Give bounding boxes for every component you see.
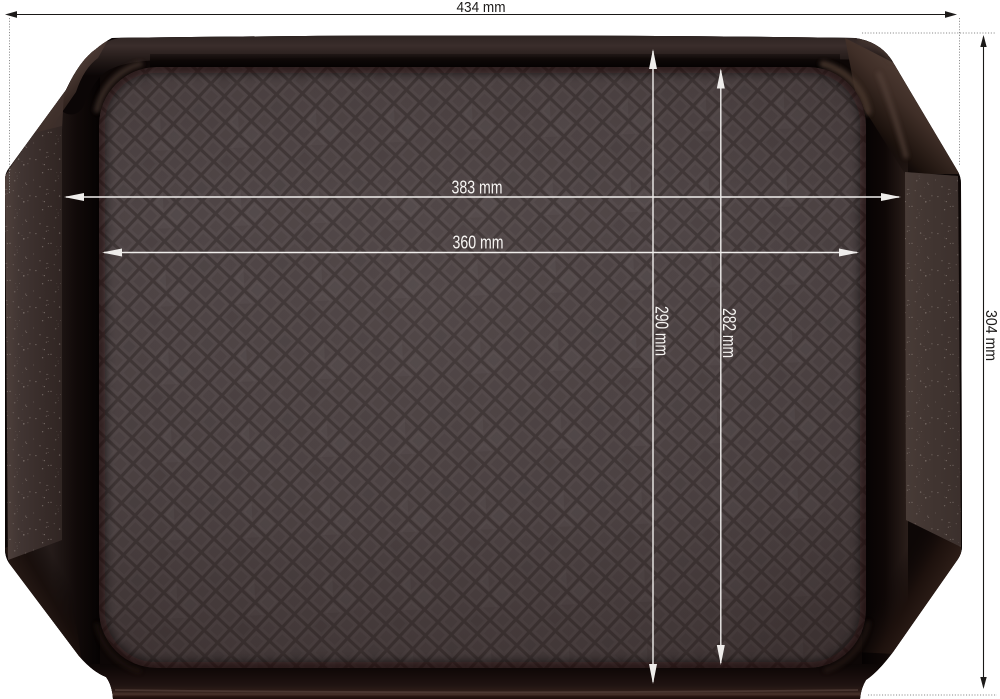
- svg-text:290 mm: 290 mm: [652, 306, 672, 356]
- svg-text:304 mm: 304 mm: [982, 310, 999, 361]
- svg-text:282 mm: 282 mm: [719, 308, 739, 358]
- svg-text:383 mm: 383 mm: [452, 178, 503, 198]
- svg-text:434 mm: 434 mm: [457, 0, 506, 16]
- svg-text:360 mm: 360 mm: [453, 233, 504, 253]
